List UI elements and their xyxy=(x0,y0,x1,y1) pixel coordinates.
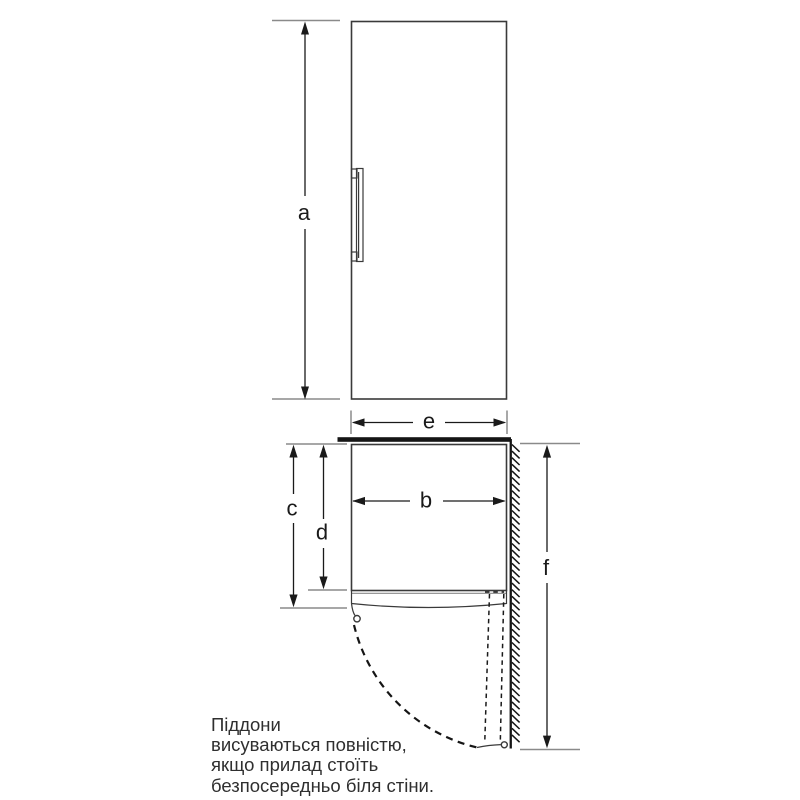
appliance-front xyxy=(352,22,507,400)
door-corner-pivot xyxy=(354,616,360,622)
arrowhead xyxy=(289,445,297,458)
door-front-edge xyxy=(352,604,507,608)
dimension-f-label: f xyxy=(543,555,550,580)
dimension-d-label: d xyxy=(316,520,328,545)
dimension-d: d xyxy=(308,445,347,590)
dimension-c: c xyxy=(280,444,347,608)
arrowhead xyxy=(352,497,365,505)
note-line: висуваються повністю, xyxy=(211,735,461,755)
dimension-f: f xyxy=(520,444,580,750)
arrowhead xyxy=(543,736,551,749)
arrowhead xyxy=(319,445,327,458)
arrowhead xyxy=(319,577,327,590)
appliance-top xyxy=(352,445,507,591)
dimension-e-label: e xyxy=(423,409,435,434)
dimension-b-label: b xyxy=(420,488,432,513)
door-top-view xyxy=(352,591,507,616)
arrowhead xyxy=(301,387,309,400)
door-hinge xyxy=(501,742,507,748)
arrowhead xyxy=(289,595,297,608)
note-text: Піддони висуваються повністю, якщо прила… xyxy=(211,715,461,796)
note-line: якщо прилад стоїть xyxy=(211,755,461,775)
dimension-c-label: c xyxy=(287,496,298,521)
door-open-outline xyxy=(477,592,504,748)
dimension-b: b xyxy=(352,488,505,513)
wall-hatching xyxy=(512,445,520,743)
note-line: безпосередньо біля стіни. xyxy=(211,776,461,796)
arrowhead xyxy=(301,22,309,35)
note-line: Піддони xyxy=(211,715,461,735)
door-handle xyxy=(352,169,364,262)
front-view xyxy=(352,22,507,400)
appliance-dimension-diagram: a e xyxy=(0,0,800,800)
arrowhead xyxy=(493,497,506,505)
handle-bar xyxy=(357,169,364,262)
dimension-a: a xyxy=(272,21,340,400)
dimension-a-label: a xyxy=(298,200,311,225)
back-wall xyxy=(338,437,512,442)
side-wall xyxy=(510,439,512,749)
top-view xyxy=(338,437,520,748)
arrowhead xyxy=(352,418,365,426)
arrowhead xyxy=(494,418,507,426)
arrowhead xyxy=(543,445,551,458)
dimension-e: e xyxy=(351,409,507,435)
